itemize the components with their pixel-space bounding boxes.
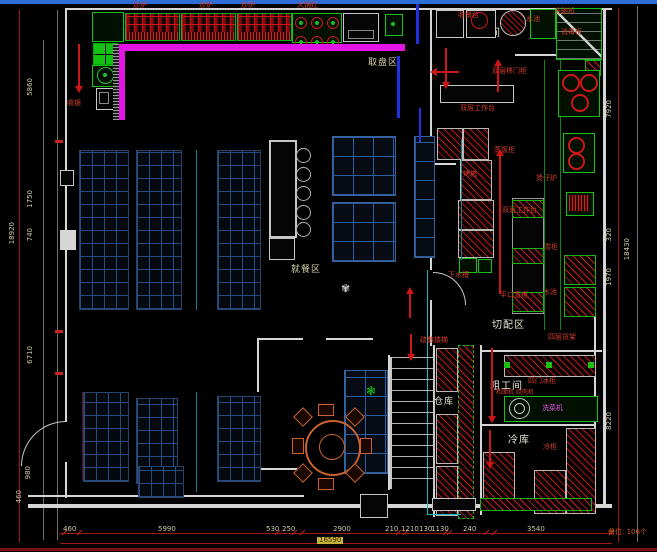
- flow-arrow-down: [410, 334, 412, 358]
- round-table-center: [319, 434, 345, 460]
- dim-right-3: 8220: [606, 412, 613, 430]
- claypot-label: 煲仔炉: [536, 175, 557, 182]
- bottom-border: [0, 548, 657, 551]
- wok-burner-icon: [327, 17, 339, 29]
- wall-coldroom-top: [480, 424, 595, 426]
- chair: [318, 404, 334, 416]
- freezer-label: 雪柜: [544, 244, 558, 251]
- cutting-area-label: 切配区: [492, 316, 525, 331]
- wall-left-lower: [65, 462, 67, 498]
- cashier-stand-inner: [99, 92, 109, 104]
- dim-bottom-9: 240: [463, 526, 476, 533]
- dim-bottom-6: 1210: [401, 526, 419, 533]
- flow-arrow-up: [497, 62, 499, 92]
- bar-counter-end: [269, 238, 295, 260]
- dishwash-worktable: [440, 85, 514, 103]
- warehouse-label: 仓库: [434, 394, 454, 407]
- dim-bottom-1: 5990: [158, 526, 176, 533]
- dim-right-2: 1970: [606, 268, 613, 286]
- wok-station-1-hatch: [125, 32, 180, 41]
- shelf-post: [546, 362, 552, 368]
- wall-warehouse-right: [480, 345, 482, 515]
- warehouse-shelf: [436, 414, 458, 464]
- shelf-post: [588, 362, 594, 368]
- service-line-vertical: [119, 44, 125, 120]
- dim-bottom-5: 210: [385, 526, 398, 533]
- dishwasher-label: 洗碗机: [554, 8, 575, 15]
- wok-station-3-hatch: [237, 32, 292, 41]
- warehouse-rack-strip: [458, 345, 474, 519]
- wok-burner-icon: [311, 17, 323, 29]
- wok-burner-icon: [295, 17, 307, 29]
- bigwok-label: 大锅灶: [297, 2, 318, 9]
- plate-area-label: 取盘区: [368, 55, 398, 68]
- escalator-line: [416, 4, 419, 44]
- wok-station-3: [237, 13, 292, 34]
- floor-drain-icon: [500, 10, 526, 36]
- worktable1-label: 双层工作台: [460, 105, 495, 112]
- service-line-horizontal: [123, 44, 405, 51]
- dim-bottom-4: 2900: [333, 526, 351, 533]
- wall-vip-stub: [257, 468, 297, 470]
- chair: [360, 438, 372, 454]
- flower-ornament-icon: ✾: [341, 283, 350, 294]
- wall-vip-top-1: [257, 338, 303, 340]
- flow-arrow-down: [489, 430, 491, 466]
- drain-sink-label: 下水槽: [448, 272, 469, 279]
- steam-cabinet: [564, 255, 596, 285]
- rice-steamer-box: [460, 160, 492, 200]
- veg-washer-label: 洗菜机: [542, 403, 563, 413]
- wok-station-1: [125, 13, 180, 34]
- flow-arrow-up: [409, 290, 411, 318]
- booth-cluster: [83, 392, 129, 482]
- cad-floorplan-canvas[interactable]: 收银 炒炉 炒炉 炒炉 大锅灶 洗碗间 取盘区 收餐台 水池 洗碗机 消毒柜 双…: [0, 0, 657, 552]
- staircase: [390, 357, 435, 489]
- wok-station-2-hatch: [181, 32, 236, 41]
- plant-icon: ❃: [366, 385, 376, 397]
- sink2-label: 水池: [543, 289, 557, 296]
- wall-roughwork-top: [480, 350, 602, 352]
- dim-line-right: [618, 8, 619, 542]
- bar-stool: [296, 222, 311, 237]
- dim-right-total: 18430: [624, 238, 631, 260]
- flow-arrow-down: [491, 348, 493, 420]
- dining-area-label: 就餐区: [291, 262, 321, 275]
- worktable2-label: 双层工作台: [502, 207, 537, 214]
- disinfect-label: 消毒柜: [561, 29, 582, 36]
- wok-station-2: [181, 13, 236, 34]
- booth-cluster: [136, 150, 182, 310]
- dim-left-3: 6710: [27, 346, 34, 364]
- small-cabinet-dot: [391, 22, 395, 26]
- flow-arrow-up: [499, 152, 501, 294]
- dim-left-total: 18920: [9, 222, 16, 244]
- divider-line: [461, 140, 462, 260]
- divider-line: [196, 150, 197, 310]
- oven-label: 烤箱: [463, 171, 477, 178]
- equip-cabinet: [463, 128, 489, 160]
- pass-table-inner: [348, 30, 374, 39]
- burner-icon: [571, 94, 589, 112]
- wall-vip-top-2: [326, 338, 373, 340]
- dim-right-0: 7920: [606, 100, 613, 118]
- dim-bottom-10: 3540: [527, 526, 545, 533]
- dim-line-bottom: [60, 533, 612, 534]
- route-line: [427, 514, 461, 515]
- chair: [293, 463, 313, 483]
- sink-small: [478, 259, 492, 273]
- stair-landing: [360, 494, 388, 518]
- booth-cluster: [79, 150, 129, 310]
- cashier-counter: [92, 12, 124, 42]
- door-mark: [55, 372, 63, 375]
- steam-cabinet: [564, 287, 596, 317]
- fourdoor-label: 四门冰柜: [528, 378, 556, 385]
- bottom-cabinet: [432, 498, 476, 511]
- bar-stool: [296, 167, 311, 182]
- sink-unit: [530, 9, 556, 39]
- chair: [292, 438, 304, 454]
- flow-arrow-down: [445, 48, 447, 86]
- booth-cluster: [138, 466, 184, 498]
- booth-cluster: [217, 396, 261, 482]
- grill-hatch: [569, 195, 589, 211]
- divider-line: [196, 392, 197, 492]
- burner-icon: [568, 153, 585, 170]
- shelf4-label: 四层货架: [548, 334, 576, 341]
- ext-line-right: [637, 6, 638, 542]
- equip-cabinet: [437, 128, 463, 160]
- bar-stool: [296, 186, 311, 201]
- wok3-label: 炒炉: [241, 2, 255, 9]
- collect-table-label: 收餐台: [458, 12, 479, 19]
- dim-bottom-total: 16590: [317, 537, 343, 544]
- door-mark: [55, 330, 63, 333]
- escalator-line: [419, 108, 421, 142]
- warehouse-shelf: [436, 348, 458, 392]
- cashier-label: 收银: [67, 100, 81, 107]
- cold-storage-label: 冷库: [508, 431, 530, 446]
- entrance-door-arc: [21, 421, 66, 466]
- dim-left-1: 1750: [27, 190, 34, 208]
- wall-left-upper: [65, 8, 67, 422]
- seats-note: 餐位: 106个: [608, 529, 647, 536]
- shelf-rail: [544, 60, 545, 330]
- sink1-label: 水池: [526, 16, 540, 23]
- dim-left-2: 740: [27, 228, 34, 241]
- burner-icon: [580, 74, 598, 92]
- pilaster-2: [60, 230, 76, 250]
- wok2-label: 炒炉: [199, 2, 213, 9]
- pilaster-1: [60, 170, 74, 186]
- chair: [293, 407, 313, 427]
- window-titlebar: [0, 0, 657, 4]
- stair-note-label: 疏散楼梯: [420, 337, 448, 344]
- door-mark: [55, 140, 63, 143]
- table-grid: [332, 202, 396, 262]
- bar-counter: [269, 140, 297, 238]
- island-hatch: [512, 248, 544, 264]
- booth-cluster: [217, 150, 261, 310]
- wok1-label: 炒炉: [133, 2, 147, 9]
- table-grid: [414, 136, 435, 258]
- dim-bottom-8: 1130: [431, 526, 449, 533]
- dim-left-5: 460: [16, 490, 23, 503]
- dim-bottom-0: 460: [63, 526, 76, 533]
- cold-cabinet-label: 冷柜: [543, 444, 557, 451]
- burner-icon: [562, 74, 580, 92]
- wall-right: [603, 8, 606, 508]
- equip-cabinet: [458, 230, 494, 258]
- dim-right-1: 320: [606, 228, 613, 241]
- table-grid: [332, 136, 396, 196]
- dim-line-left: [19, 10, 20, 542]
- veg-washer-inner: [514, 403, 525, 414]
- gauge-dot: [103, 73, 107, 77]
- shelf-post: [504, 362, 510, 368]
- big-wok-stove: [292, 13, 342, 43]
- flat-freezer-label: 平口雪柜: [500, 292, 528, 299]
- chair: [318, 478, 334, 490]
- dim-left-0: 5860: [27, 78, 34, 96]
- flow-arrow-down: [78, 44, 80, 90]
- dim-left-4: 980: [25, 466, 32, 479]
- dim-bottom-2: 530: [266, 526, 279, 533]
- wall-vip-left-upper: [257, 338, 259, 392]
- equip-cabinet: [458, 200, 494, 230]
- bottom-green-counter: [480, 498, 592, 511]
- bar-stool: [296, 205, 311, 220]
- burner-icon: [568, 137, 585, 154]
- escalator-line: [397, 56, 400, 118]
- dim-bottom-3: 250: [282, 526, 295, 533]
- bar-stool: [296, 148, 311, 163]
